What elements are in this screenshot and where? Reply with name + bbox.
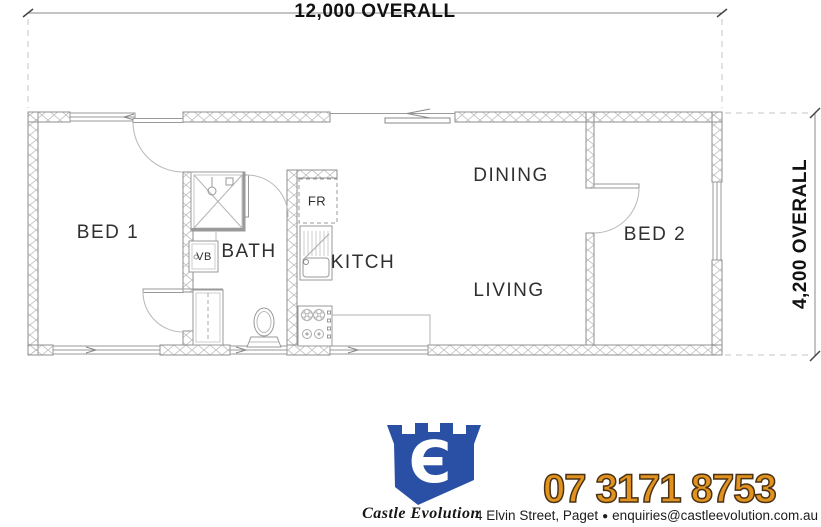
room-label-dining: DINING — [473, 165, 549, 187]
bed1-door-icon — [143, 289, 183, 332]
email-address: enquiries@castleevolution.com.au — [612, 508, 818, 523]
stove-icon — [298, 306, 332, 346]
window-bottom-bed1 — [53, 346, 160, 354]
sink-icon — [300, 226, 332, 280]
bullet-separator-icon: ● — [602, 511, 608, 522]
room-label-kitchen: KITCH — [331, 252, 396, 274]
windows — [53, 113, 721, 354]
bath-door-icon — [245, 175, 288, 217]
company-name: Castle Evolution — [362, 505, 480, 523]
toilet-icon — [247, 308, 281, 347]
window-bottom-kitchen — [330, 346, 428, 354]
room-label-bed2: BED 2 — [624, 224, 686, 246]
room-label-bath: BATH — [221, 241, 276, 263]
address-line: 4 Elvin Street, Paget●enquiries@castleev… — [475, 508, 818, 523]
fixture-label-vanity: VB — [196, 251, 212, 263]
sliding-door-icon — [330, 109, 455, 123]
overall-height-dimension: 4,200 OVERALL — [790, 159, 812, 309]
overall-width-dimension: 12,000 OVERALL — [294, 1, 455, 23]
floor-plan-page: 12,000 OVERALL 4,200 OVERALL BED 1 BATH … — [0, 0, 821, 527]
logo-e-glyph: Є — [409, 428, 452, 496]
phone-number: 07 3171 8753 — [543, 467, 776, 512]
kitchen-bench-outline — [332, 315, 430, 345]
window-right-bed2 — [713, 182, 721, 260]
shower-icon — [191, 172, 245, 231]
window-top-left — [70, 113, 135, 121]
fixture-label-fridge: FR — [308, 194, 326, 209]
castle-evolution-logo-icon: Є — [374, 414, 484, 508]
street-address: 4 Elvin Street, Paget — [475, 508, 598, 523]
entry-door-icon — [133, 119, 183, 173]
room-label-living: LIVING — [473, 280, 544, 302]
room-label-bed1: BED 1 — [77, 222, 139, 244]
top-dimension-line — [23, 9, 727, 108]
